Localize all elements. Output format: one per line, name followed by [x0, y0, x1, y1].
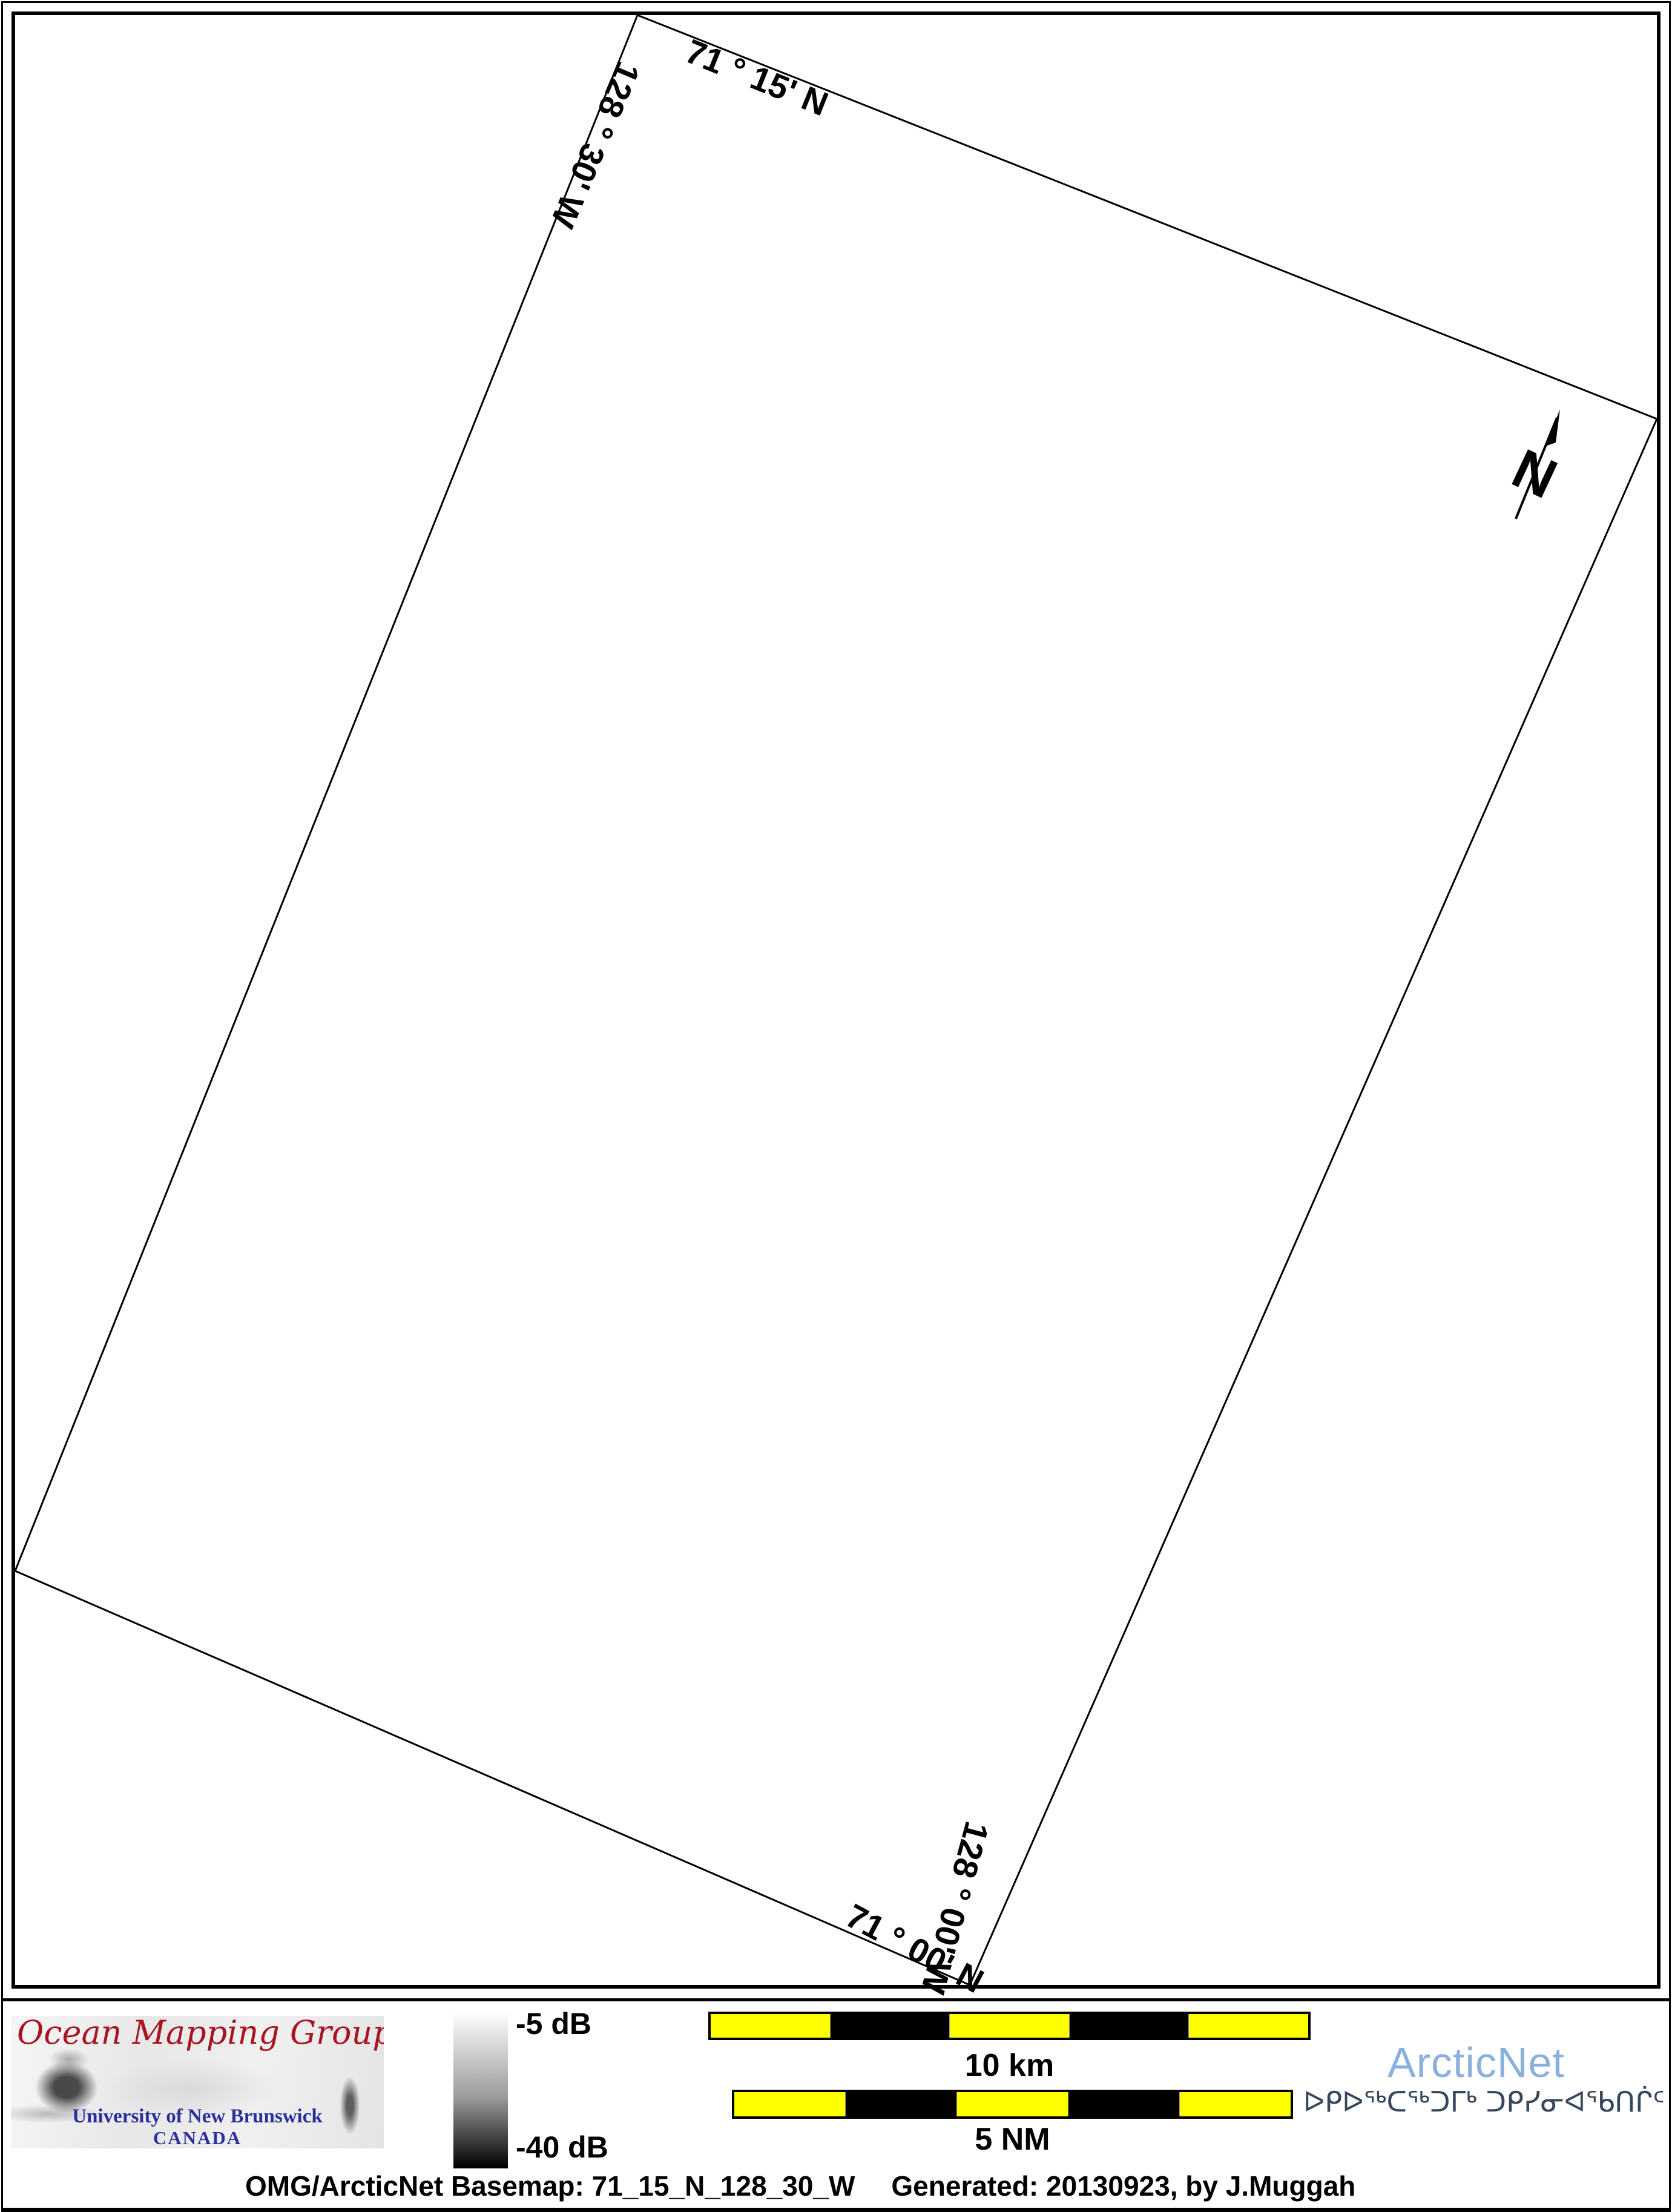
- db-colorbar: [453, 2012, 508, 2168]
- canada-label: CANADA: [11, 2128, 384, 2147]
- arcticnet-inuktitut-label: ᐅᑭᐅᖅᑕᖅᑐᒥᒃ ᑐᑭᓯᓂᐊᖃᑎᒌᑦ: [1295, 2087, 1665, 2118]
- map-canvas: [0, 0, 1672, 2212]
- caption-generated: Generated: 20130923, by J.Muggah: [891, 2172, 1355, 2200]
- scalebar-km-label: 10 km: [708, 2050, 1311, 2081]
- omg-logo: Ocean Mapping Group University of New Br…: [11, 2016, 384, 2148]
- graticule-boundary: [15, 15, 1657, 1985]
- scalebar-nm: [732, 2090, 1293, 2119]
- arcticnet-logo: ArcticNet: [1387, 2041, 1565, 2084]
- caption-basemap-id: OMG/ArcticNet Basemap: 71_15_N_128_30_W: [245, 2172, 855, 2200]
- omg-logo-title: Ocean Mapping Group: [17, 2016, 378, 2050]
- colorbar-min-label: -40 dB: [516, 2132, 608, 2162]
- unb-label: University of New Brunswick: [11, 2107, 384, 2127]
- colorbar-max-label: -5 dB: [516, 2009, 591, 2039]
- map-caption: OMG/ArcticNet Basemap: 71_15_N_128_30_W …: [245, 2172, 1355, 2200]
- scalebar-nm-label: 5 NM: [732, 2124, 1293, 2155]
- scalebar-km: [708, 2012, 1311, 2040]
